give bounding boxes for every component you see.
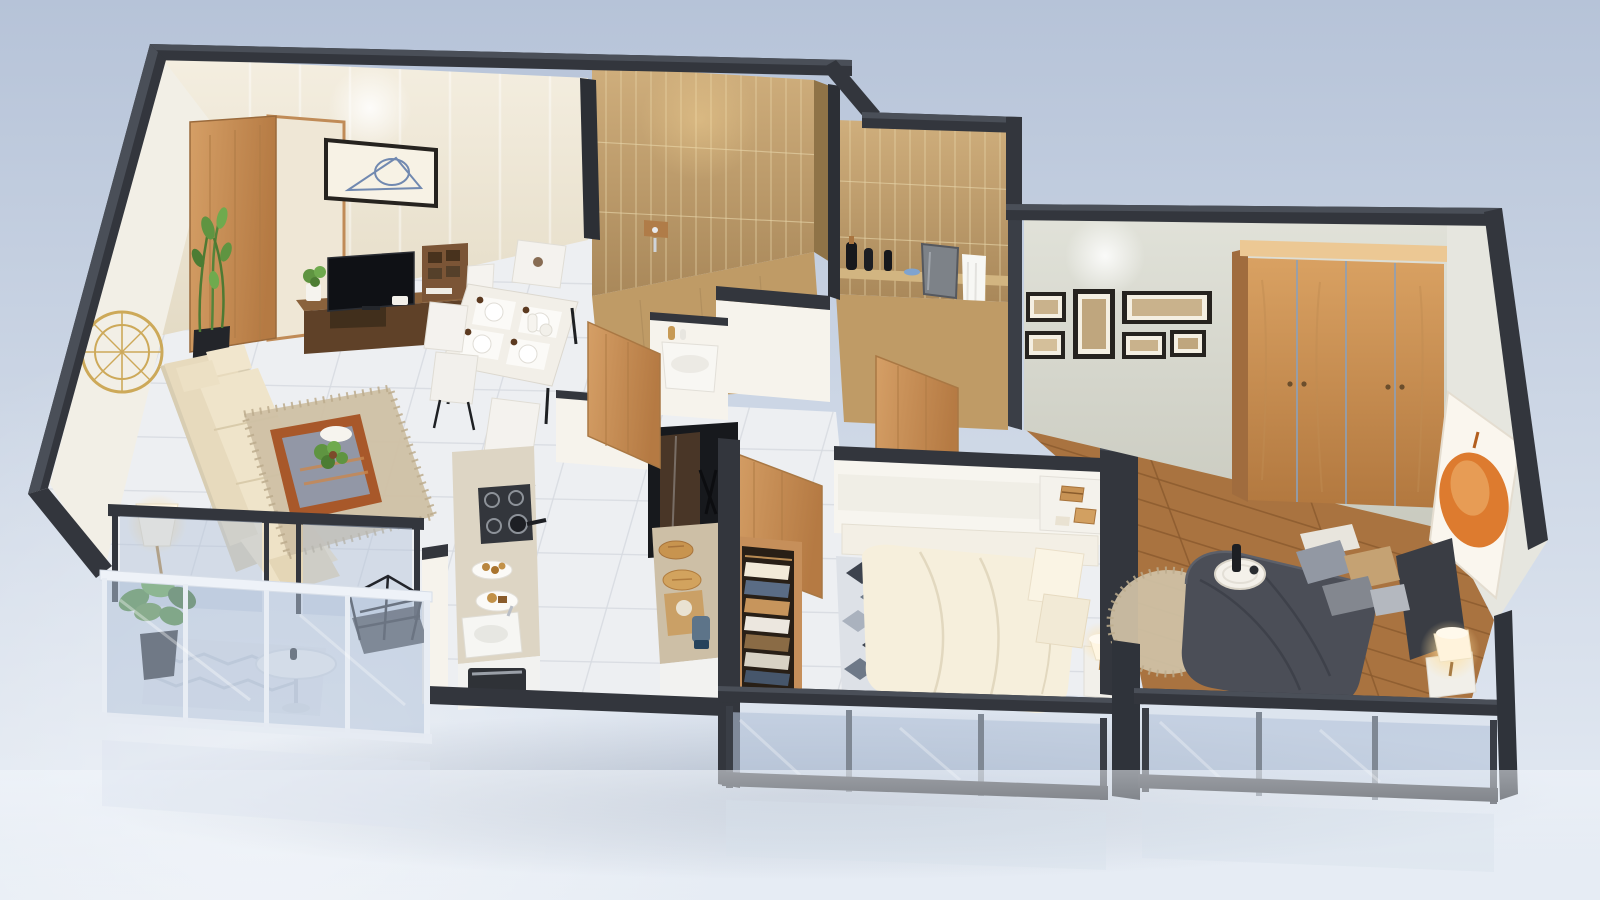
glass-railing: [100, 570, 432, 744]
floorplan-svg: [0, 0, 1600, 900]
shower-pony-wall: [716, 286, 830, 402]
photo-frame: [1026, 292, 1066, 322]
soap-dish: [904, 269, 920, 276]
media-box: [392, 296, 408, 305]
mirror: [922, 244, 958, 298]
white-bed: [842, 524, 1098, 713]
gold-wall-clock: [82, 312, 162, 392]
master-nightstand-lamp: [1420, 620, 1480, 698]
photo-frame: [1122, 291, 1212, 324]
floorplan-render: [0, 0, 1600, 900]
photo-frame: [1025, 331, 1065, 359]
balcony-living: [100, 504, 432, 744]
dining-chair: [512, 240, 566, 288]
dining-chair: [424, 302, 468, 352]
blender: [692, 616, 710, 649]
kitchen-counter-left: [452, 446, 546, 710]
wardrobe: [1232, 240, 1448, 508]
frying-pan: [509, 515, 527, 533]
desk-hutch: [422, 243, 468, 302]
photo-frame: [1170, 330, 1206, 357]
photo-frame: [1073, 289, 1115, 359]
ceiling-spot-glow: [1065, 216, 1145, 296]
door-leaf-open: [190, 116, 276, 352]
desk-with-boxes: [1040, 476, 1102, 534]
table-bottle: [528, 314, 537, 332]
photo-frame: [1122, 332, 1166, 359]
open-closet: [734, 536, 802, 702]
line-art-frame: [326, 140, 436, 206]
tray: [320, 426, 352, 442]
